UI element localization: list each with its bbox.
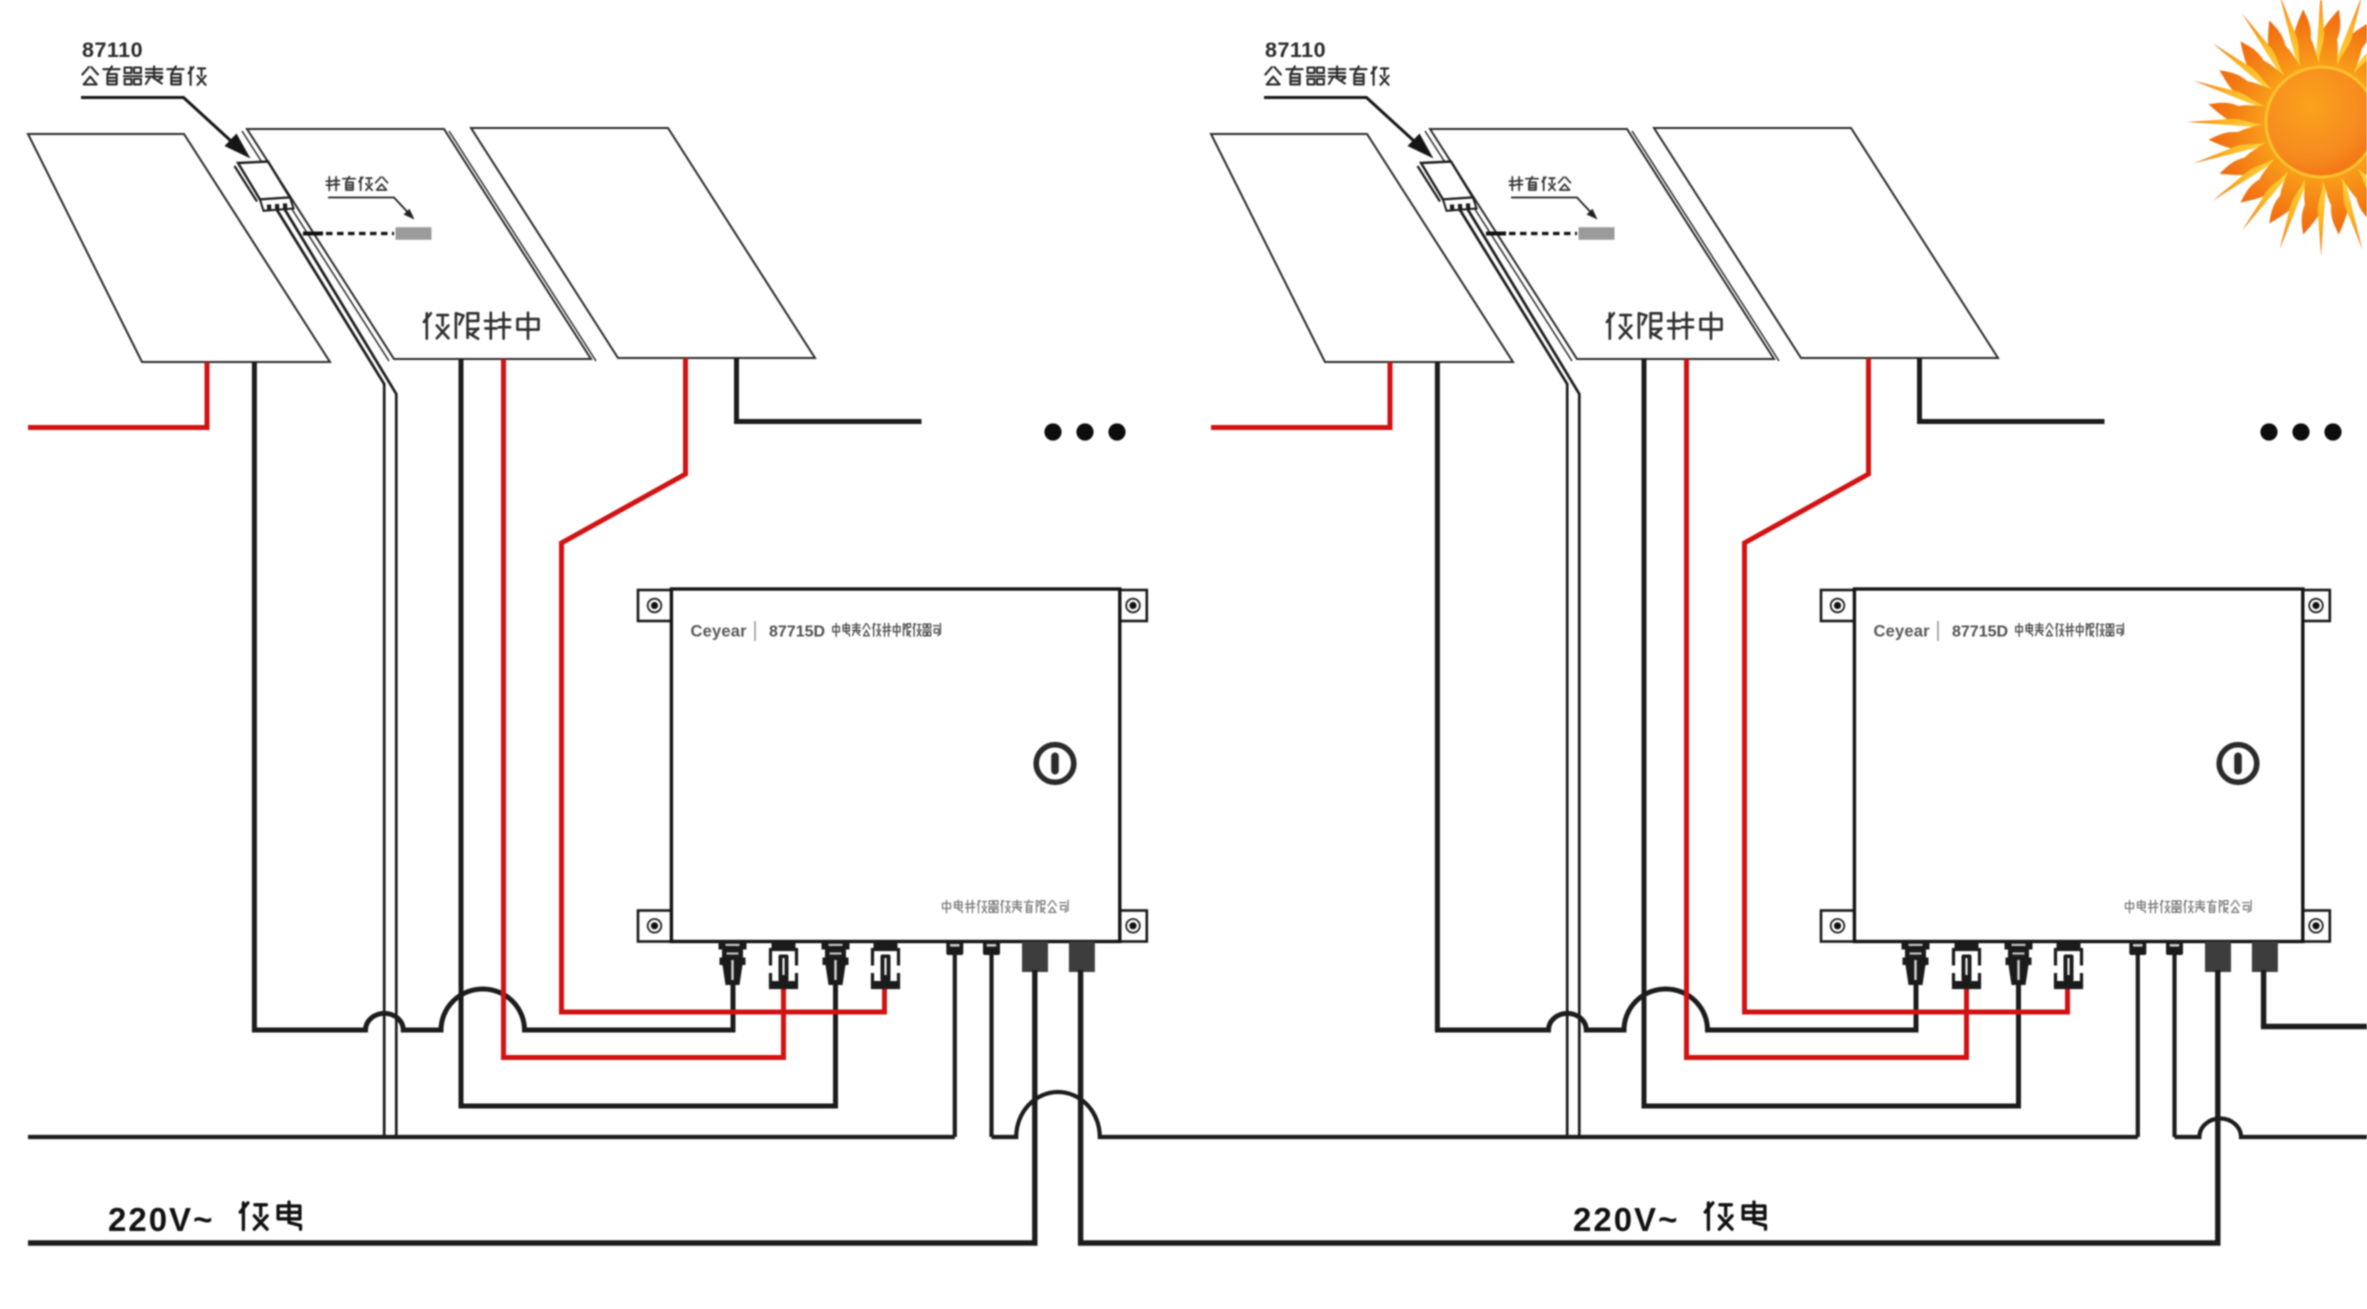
svg-text:87715D: 87715D xyxy=(1952,624,2008,641)
svg-text:Ceyear: Ceyear xyxy=(691,623,748,641)
svg-text:220V~: 220V~ xyxy=(1573,1201,1679,1238)
svg-text:87110: 87110 xyxy=(1265,38,1326,62)
svg-text:87110: 87110 xyxy=(82,38,143,62)
svg-text:Ceyear: Ceyear xyxy=(1874,623,1931,641)
svg-text:87715D: 87715D xyxy=(769,624,825,641)
svg-text:220V~: 220V~ xyxy=(108,1201,214,1238)
